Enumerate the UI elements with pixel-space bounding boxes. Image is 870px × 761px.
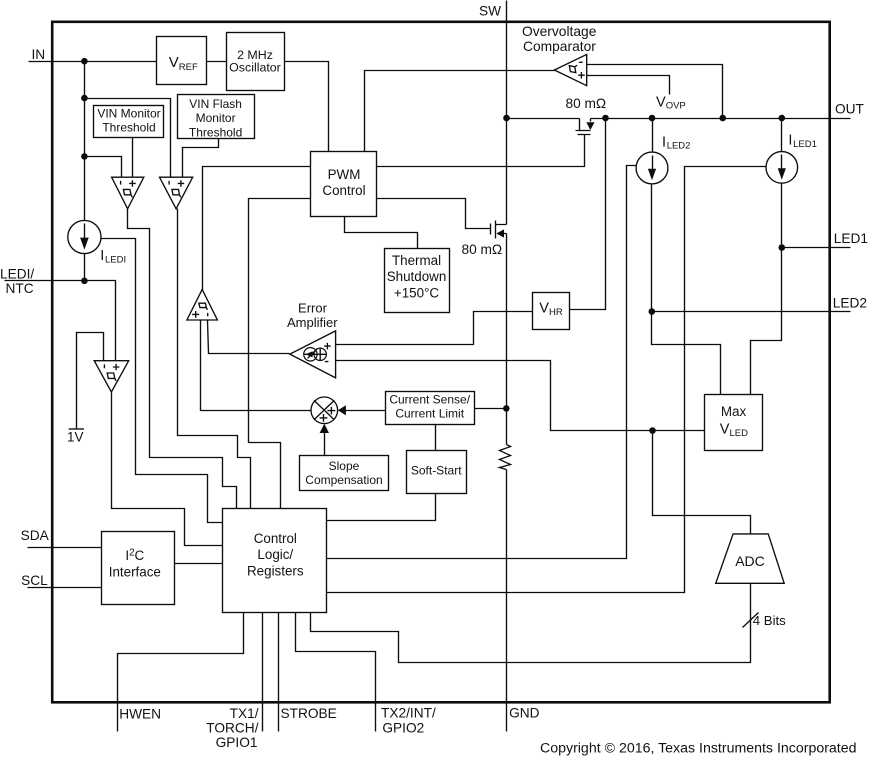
svg-text:80 mΩ: 80 mΩ [462, 242, 503, 257]
svg-text:HWEN: HWEN [119, 707, 161, 722]
svg-text:SW: SW [479, 3, 501, 18]
svg-text:OVP: OVP [666, 101, 686, 112]
svg-text:I2C: I2C [125, 548, 144, 564]
svg-text:Registers: Registers [247, 564, 304, 579]
svg-text:Comparator: Comparator [523, 39, 596, 54]
svg-text:Threshold: Threshold [102, 121, 155, 135]
svg-text:TORCH/: TORCH/ [206, 720, 258, 735]
svg-text:VIN Flash: VIN Flash [189, 97, 242, 111]
svg-text:Thermal: Thermal [392, 253, 441, 268]
svg-text:V: V [656, 94, 666, 110]
svg-text:Interface: Interface [109, 564, 161, 579]
svg-text:Control: Control [322, 183, 365, 198]
svg-text:1V: 1V [67, 430, 83, 445]
svg-text:V: V [539, 301, 549, 317]
svg-text:LED1: LED1 [834, 231, 868, 246]
svg-text:REF: REF [179, 62, 198, 73]
svg-text:GPIO2: GPIO2 [382, 721, 424, 736]
svg-text:LEDI: LEDI [105, 254, 126, 265]
svg-text:Shutdown: Shutdown [387, 269, 447, 284]
svg-text:GND: GND [509, 706, 540, 721]
svg-text:Soft-Start: Soft-Start [411, 464, 462, 478]
svg-text:I: I [788, 133, 792, 149]
svg-text:Oscillator: Oscillator [229, 60, 281, 74]
svg-text:ADC: ADC [735, 553, 765, 569]
svg-text:Current Limit: Current Limit [395, 407, 464, 421]
svg-text:SCL: SCL [21, 573, 48, 588]
svg-text:PWM: PWM [328, 167, 361, 182]
svg-text:LED2: LED2 [667, 141, 691, 152]
svg-text:80 mΩ: 80 mΩ [566, 96, 607, 111]
svg-text:Overvoltage: Overvoltage [522, 24, 597, 39]
svg-text:Monitor: Monitor [196, 111, 236, 125]
svg-text:LED: LED [730, 428, 749, 439]
svg-text:HR: HR [549, 307, 563, 318]
svg-text:Compensation: Compensation [305, 473, 382, 487]
svg-text:VIN Monitor: VIN Monitor [97, 107, 160, 121]
svg-text:Amplifier: Amplifier [287, 315, 338, 330]
svg-text:V: V [720, 422, 730, 438]
svg-text:NTC: NTC [6, 281, 34, 296]
svg-text:LEDI/: LEDI/ [0, 267, 34, 282]
svg-text:Control: Control [254, 531, 297, 546]
svg-text:+150°C: +150°C [394, 286, 440, 301]
svg-text:4 Bits: 4 Bits [753, 613, 786, 628]
svg-text:V: V [169, 54, 179, 71]
svg-text:TX1/: TX1/ [230, 706, 259, 721]
svg-text:SDA: SDA [21, 528, 50, 543]
svg-text:Threshold: Threshold [189, 125, 242, 139]
svg-text:Current Sense/: Current Sense/ [389, 392, 470, 406]
svg-text:OUT: OUT [835, 102, 865, 117]
svg-text:Logic/: Logic/ [257, 547, 293, 562]
svg-text:GPIO1: GPIO1 [216, 735, 258, 750]
svg-text:Copyright © 2016, Texas Instru: Copyright © 2016, Texas Instruments Inco… [540, 741, 857, 757]
svg-text:STROBE: STROBE [281, 706, 337, 721]
svg-text:IN: IN [32, 47, 46, 62]
svg-text:LED1: LED1 [793, 139, 817, 150]
svg-text:I: I [662, 134, 666, 150]
svg-text:TX2/INT/: TX2/INT/ [381, 706, 436, 721]
svg-text:Max: Max [721, 404, 747, 419]
svg-text:LED2: LED2 [833, 295, 867, 310]
svg-text:Slope: Slope [329, 459, 360, 473]
svg-text:Error: Error [298, 301, 328, 316]
svg-text:I: I [100, 248, 104, 264]
